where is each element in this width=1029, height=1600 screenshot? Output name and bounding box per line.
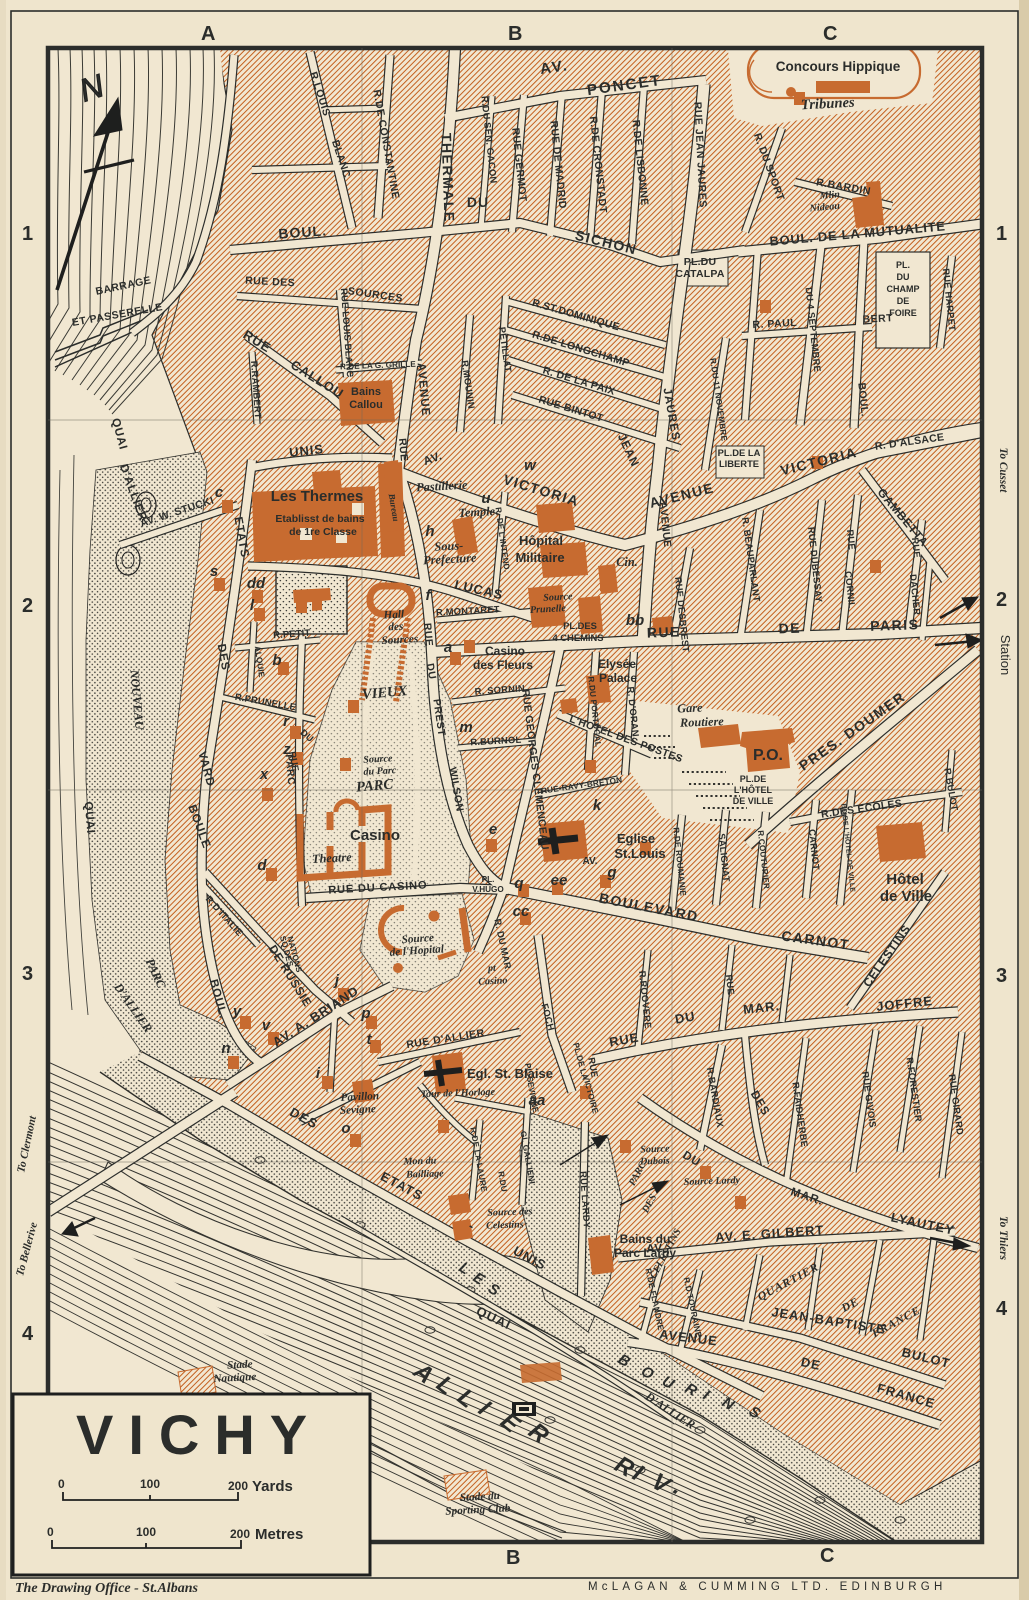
svg-text:RUE: RUE	[647, 623, 682, 640]
svg-text:Pastillerie: Pastillerie	[416, 478, 468, 495]
svg-text:Routiere: Routiere	[679, 714, 725, 730]
svg-text:PL.DE LA: PL.DE LA	[718, 447, 761, 458]
svg-text:BOUL.: BOUL.	[278, 222, 328, 241]
svg-text:Eglise: Eglise	[617, 831, 655, 846]
svg-text:PL.DU: PL.DU	[684, 256, 717, 268]
svg-text:PL.DES: PL.DES	[563, 620, 597, 631]
svg-text:Tribunes: Tribunes	[801, 95, 856, 114]
svg-text:q: q	[514, 875, 523, 892]
svg-text:Bailliage: Bailliage	[405, 1168, 444, 1180]
svg-text:Callou: Callou	[349, 399, 383, 411]
svg-text:Prunelle: Prunelle	[530, 603, 567, 616]
svg-text:4 CHEMINS: 4 CHEMINS	[552, 632, 603, 643]
svg-text:CATALPA: CATALPA	[675, 268, 724, 280]
svg-text:dd: dd	[247, 575, 266, 592]
svg-text:PL.: PL.	[896, 260, 910, 270]
svg-text:C: C	[823, 23, 837, 45]
svg-text:2: 2	[22, 595, 33, 617]
svg-text:Etablisst de bains: Etablisst de bains	[275, 513, 364, 525]
svg-text:u: u	[481, 490, 490, 507]
svg-text:RUE: RUE	[910, 537, 923, 558]
svg-text:3: 3	[996, 965, 1007, 987]
svg-text:Hôpital: Hôpital	[519, 533, 563, 548]
svg-text:0: 0	[47, 1525, 54, 1539]
svg-text:Stade: Stade	[227, 1358, 253, 1371]
svg-text:Source des: Source des	[487, 1206, 533, 1219]
svg-text:FOIRE: FOIRE	[889, 308, 917, 318]
svg-text:R. PAUL: R. PAUL	[752, 317, 797, 331]
svg-text:x: x	[259, 766, 269, 783]
svg-text:Source: Source	[543, 591, 573, 604]
svg-text:h: h	[425, 523, 434, 540]
svg-text:1: 1	[996, 223, 1007, 245]
svg-text:PARIS: PARIS	[870, 616, 920, 634]
svg-text:B: B	[506, 1547, 520, 1569]
svg-text:Bains du: Bains du	[620, 1232, 671, 1246]
svg-text:PL.DE: PL.DE	[740, 774, 767, 784]
svg-text:THERMALE: THERMALE	[438, 133, 457, 223]
svg-text:To Cusset: To Cusset	[997, 448, 1009, 494]
svg-text:Parc Lardy: Parc Lardy	[614, 1246, 676, 1260]
svg-text:ee: ee	[551, 872, 568, 889]
svg-text:2: 2	[996, 589, 1007, 611]
svg-text:LIBERTE: LIBERTE	[719, 458, 759, 469]
svg-text:de 1re Classe: de 1re Classe	[289, 526, 357, 538]
svg-text:DU: DU	[897, 272, 910, 282]
svg-text:Nautique: Nautique	[212, 1371, 256, 1385]
svg-text:Palace: Palace	[599, 671, 637, 685]
svg-text:z: z	[282, 741, 291, 758]
svg-text:0: 0	[58, 1477, 65, 1491]
svg-text:AV.: AV.	[582, 856, 597, 867]
svg-text:Theatre: Theatre	[312, 850, 353, 866]
svg-text:k: k	[593, 797, 602, 814]
svg-text:de Ville: de Ville	[880, 888, 932, 905]
svg-text:bb: bb	[626, 612, 644, 629]
svg-text:RUE: RUE	[421, 622, 435, 647]
svg-text:RUE: RUE	[724, 974, 737, 995]
svg-text:DU: DU	[467, 194, 489, 210]
svg-text:Bains: Bains	[351, 386, 381, 398]
svg-text:Gare: Gare	[677, 701, 703, 716]
svg-text:Concours Hippique: Concours Hippique	[776, 59, 901, 74]
svg-text:The Drawing Office - St.Albans: The Drawing Office - St.Albans	[15, 1581, 198, 1596]
svg-text:Casino: Casino	[350, 827, 400, 844]
svg-text:200: 200	[228, 1479, 248, 1493]
svg-text:V.HUGO: V.HUGO	[472, 885, 504, 894]
svg-text:Source Lardy: Source Lardy	[684, 1175, 741, 1188]
svg-text:Hôtel: Hôtel	[886, 871, 924, 888]
svg-text:Celestins: Celestins	[486, 1219, 524, 1231]
svg-text:Metres: Metres	[255, 1526, 303, 1543]
svg-text:s: s	[210, 563, 218, 580]
svg-text:L'HÔTEL: L'HÔTEL	[734, 784, 773, 795]
svg-text:Hall: Hall	[382, 608, 405, 621]
svg-text:RUE: RUE	[845, 529, 858, 550]
svg-text:m: m	[459, 719, 472, 736]
svg-text:Casino: Casino	[478, 975, 508, 988]
svg-text:To Thiers: To Thiers	[997, 1216, 1009, 1261]
svg-text:Les Thermes: Les Thermes	[271, 488, 364, 505]
svg-text:g: g	[606, 864, 616, 881]
svg-text:PL.: PL.	[482, 875, 495, 884]
svg-text:a: a	[444, 639, 452, 656]
svg-text:Yards: Yards	[252, 1478, 293, 1495]
svg-text:1: 1	[22, 223, 33, 245]
svg-text:p: p	[360, 1005, 370, 1022]
svg-text:Cin.: Cin.	[616, 555, 638, 569]
svg-text:PARC: PARC	[356, 776, 395, 795]
svg-text:St.Louis: St.Louis	[614, 846, 665, 861]
svg-text:du Parc: du Parc	[363, 765, 397, 778]
svg-text:des: des	[388, 621, 404, 634]
svg-text:Stade du: Stade du	[460, 1490, 501, 1504]
svg-text:o: o	[341, 1120, 350, 1137]
svg-text:Source: Source	[363, 753, 393, 766]
svg-text:A: A	[201, 23, 215, 45]
svg-text:Mon du: Mon du	[402, 1155, 437, 1167]
svg-text:DE: DE	[778, 620, 801, 637]
svg-text:DE VILLE: DE VILLE	[733, 796, 774, 806]
svg-text:Elysée: Elysée	[598, 657, 636, 671]
svg-text:VICHY: VICHY	[76, 1403, 322, 1466]
svg-text:w: w	[524, 457, 537, 474]
svg-text:b: b	[272, 652, 281, 669]
svg-text:P.O.: P.O.	[753, 747, 783, 764]
svg-text:c: c	[215, 484, 224, 501]
svg-text:4: 4	[22, 1323, 34, 1345]
svg-text:DE: DE	[897, 296, 910, 306]
svg-text:Militaire: Militaire	[515, 550, 564, 565]
svg-text:C: C	[820, 1545, 834, 1567]
svg-text:100: 100	[136, 1525, 156, 1539]
svg-text:Prefecture: Prefecture	[423, 551, 477, 568]
svg-text:des Fleurs: des Fleurs	[473, 658, 533, 672]
svg-text:Sources: Sources	[381, 633, 419, 647]
svg-text:200: 200	[230, 1527, 250, 1541]
svg-text:3: 3	[22, 963, 33, 985]
svg-text:n: n	[221, 1040, 230, 1057]
svg-text:Egl. St. Blaise: Egl. St. Blaise	[467, 1066, 553, 1081]
svg-text:cc: cc	[513, 903, 530, 920]
svg-text:y: y	[232, 1003, 242, 1020]
svg-text:j: j	[333, 972, 340, 989]
svg-text:McLAGAN & CUMMING LTD. EDINBUR: McLAGAN & CUMMING LTD. EDINBURGH	[588, 1581, 946, 1593]
svg-text:aa: aa	[529, 1092, 546, 1109]
svg-text:d: d	[257, 857, 267, 874]
svg-text:Sevigne: Sevigne	[340, 1103, 377, 1117]
svg-text:e: e	[489, 821, 497, 838]
svg-text:Station: Station	[998, 635, 1013, 675]
svg-text:B: B	[508, 23, 522, 45]
svg-text:Casino: Casino	[485, 644, 525, 658]
svg-text:Pavillon: Pavillon	[340, 1090, 379, 1104]
svg-text:RUE: RUE	[396, 438, 410, 462]
svg-text:CHAMP: CHAMP	[887, 284, 920, 294]
svg-text:Source: Source	[640, 1143, 670, 1155]
svg-text:4: 4	[996, 1298, 1008, 1320]
svg-text:100: 100	[140, 1477, 160, 1491]
